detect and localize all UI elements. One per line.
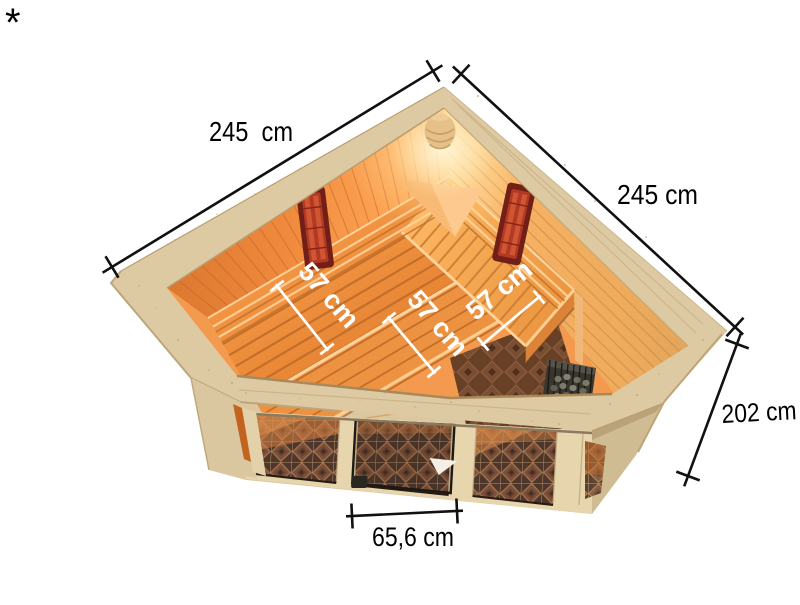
svg-text:245 cm: 245 cm <box>617 179 698 210</box>
svg-text:202 cm: 202 cm <box>721 395 797 429</box>
svg-text:65,6 cm: 65,6 cm <box>372 522 454 552</box>
svg-text:*: * <box>5 1 21 45</box>
svg-text:245 cm: 245 cm <box>209 116 293 147</box>
